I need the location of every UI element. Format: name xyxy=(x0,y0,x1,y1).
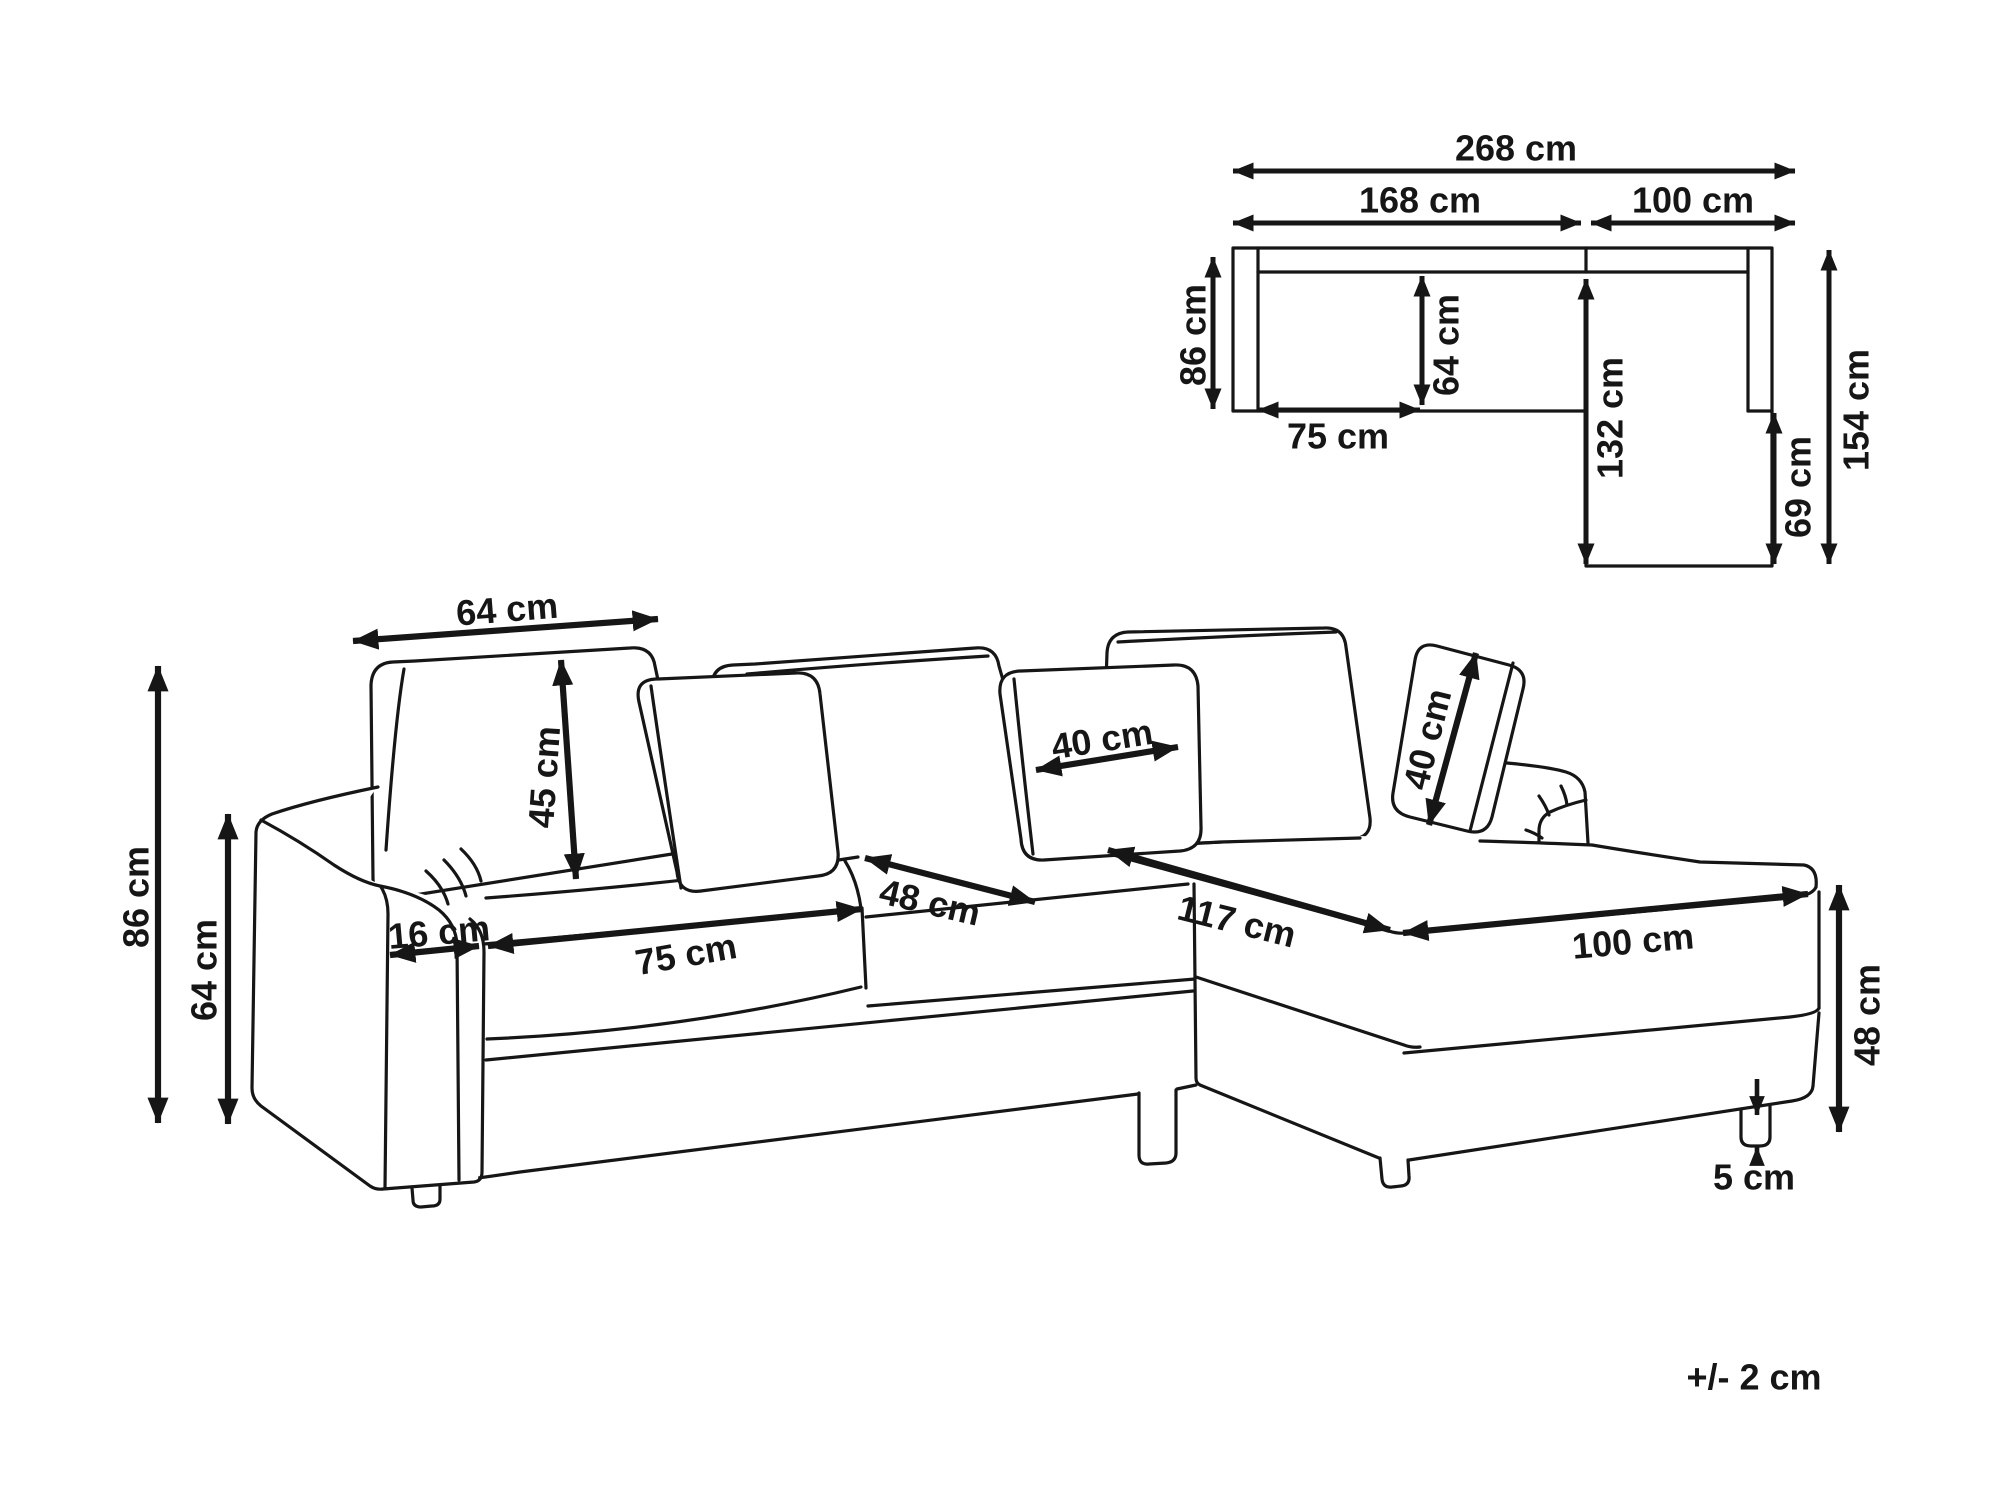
svg-text:+/- 2 cm: +/- 2 cm xyxy=(1686,1357,1821,1398)
svg-text:154 cm: 154 cm xyxy=(1836,349,1877,471)
svg-text:268 cm: 268 cm xyxy=(1455,128,1577,169)
svg-text:64 cm: 64 cm xyxy=(455,585,560,634)
svg-text:75 cm: 75 cm xyxy=(1287,416,1389,457)
svg-text:100 cm: 100 cm xyxy=(1632,180,1754,221)
svg-text:168 cm: 168 cm xyxy=(1359,180,1481,221)
svg-text:64 cm: 64 cm xyxy=(184,919,225,1021)
svg-text:132 cm: 132 cm xyxy=(1590,357,1631,479)
svg-text:86 cm: 86 cm xyxy=(1173,284,1214,386)
svg-text:64 cm: 64 cm xyxy=(1426,294,1467,396)
svg-text:86 cm: 86 cm xyxy=(116,846,157,948)
svg-text:5 cm: 5 cm xyxy=(1713,1157,1795,1198)
svg-text:69 cm: 69 cm xyxy=(1778,436,1819,538)
svg-text:45 cm: 45 cm xyxy=(520,725,568,830)
svg-text:48 cm: 48 cm xyxy=(1847,964,1888,1066)
